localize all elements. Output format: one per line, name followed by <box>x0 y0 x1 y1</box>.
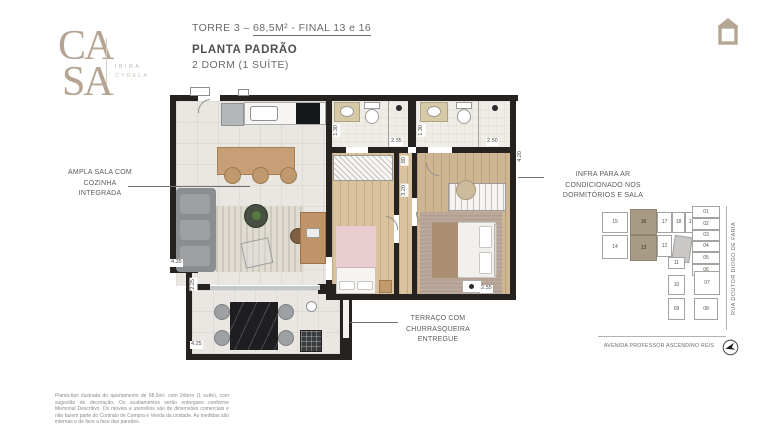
tower-spec-underlined: 68,5M² - FINAL 13 e 16 <box>253 22 371 36</box>
wall <box>394 243 399 296</box>
sofa-cushion <box>180 220 210 240</box>
bedroom2-pillow <box>339 281 355 290</box>
suite-ottoman <box>456 180 476 200</box>
plant <box>252 211 261 220</box>
building-icon <box>716 17 740 45</box>
wall <box>220 95 518 101</box>
keyplan-unit-05: 05 <box>692 252 720 264</box>
keyplan-unit-01: 01 <box>692 206 720 218</box>
suite-headboard <box>494 224 497 276</box>
street-name-right: RUA DOUTOR DIOGO DE FARIA <box>731 206 737 330</box>
keyplan-unit-14: 14 <box>602 235 628 259</box>
bedroom2-nightstand <box>379 280 392 293</box>
wall <box>326 95 332 257</box>
dim-living-width: 4.35 <box>170 259 183 267</box>
desk <box>300 212 326 264</box>
kitchen-sink <box>250 106 278 121</box>
wall <box>368 147 408 153</box>
keyplan-unit-13: 13 <box>630 235 657 261</box>
street-name-bottom: AVENIDA PROFESSOR ASCENDINO REIS <box>598 343 720 349</box>
suite-pillow <box>479 226 492 248</box>
callout-ac-infra: INFRA PARA AR CONDICIONADO NOS DORMITÓRI… <box>540 170 666 202</box>
street-line-right <box>726 206 727 330</box>
keyplan-unit-11: 11 <box>668 257 685 269</box>
keyplan-unit-10: 10 <box>668 275 685 295</box>
bath1-showerhead <box>396 105 402 111</box>
wall <box>510 95 516 300</box>
bath1-sink <box>340 106 354 117</box>
brand-tagline-2: CYRELA <box>115 73 149 79</box>
kitchen-cabinet <box>221 103 244 126</box>
cooktop <box>296 103 320 124</box>
sliding-glass-door <box>210 285 320 290</box>
bath1-toilet <box>365 109 379 124</box>
terrace-chair <box>214 330 230 346</box>
wall <box>326 294 516 300</box>
terrace-chair <box>278 304 294 320</box>
keyplan-unit-08: 08 <box>694 298 718 320</box>
dim-bath1-width: 2.35 <box>390 138 403 146</box>
dim-hall-width: .80 <box>401 156 409 166</box>
logo-divider <box>106 38 107 84</box>
terrace-sink <box>306 301 317 312</box>
plan-title: PLANTA PADRÃO <box>192 44 297 56</box>
wall <box>186 354 352 360</box>
bath2-showerhead <box>492 105 498 111</box>
sofa-cushion <box>180 246 210 266</box>
dim-suite-width: 2.55 <box>480 285 493 293</box>
bath2-shower-partition <box>478 101 479 147</box>
bedroom2-blanket <box>336 226 376 268</box>
wall <box>412 153 417 198</box>
leader-line-living <box>128 186 250 187</box>
dim-terrace-depth: 2.25 <box>190 278 198 291</box>
bath2-toilet <box>457 109 471 124</box>
street-line-bottom <box>598 336 726 337</box>
wall <box>412 226 417 296</box>
laptop <box>306 228 320 238</box>
sofa-cushion <box>180 194 210 214</box>
header-tower-line: TORRE 3 – 68,5M² - FINAL 13 e 16 <box>192 22 371 34</box>
brand-tagline-1: IBIRA <box>115 64 141 70</box>
island-stool <box>280 167 297 184</box>
keyplan-unit-15: 15 <box>602 212 628 233</box>
suite-pillow <box>479 252 492 274</box>
utility-box <box>238 89 249 96</box>
terrace-chair <box>214 304 230 320</box>
suite-blanket <box>432 222 458 278</box>
floor-plan-page: CA SA IBIRA CYRELA TORRE 3 – 68,5M² - FI… <box>0 0 764 432</box>
leader-line-terrace <box>350 322 398 323</box>
key-plan: 15 16 17 18 19 01 02 03 04 05 06 14 13 1… <box>598 203 726 325</box>
dim-bath2-depth: 1.30 <box>418 124 426 137</box>
wall <box>416 147 428 153</box>
island-stool <box>252 167 269 184</box>
utility-box <box>190 87 210 96</box>
dim-bath2-width: 2.50 <box>486 138 499 146</box>
dim-bath1-depth: 1.30 <box>333 124 341 137</box>
dim-hall-depth: 3.20 <box>401 184 409 197</box>
leader-line-ac <box>518 177 544 178</box>
terrace-chair <box>278 330 294 346</box>
barbecue-grill <box>300 330 322 352</box>
terrace-dining-table <box>230 302 278 350</box>
dim-terrace-width: 4.25 <box>190 341 203 349</box>
keyplan-unit-02: 02 <box>692 218 720 230</box>
churrasqueira-niche <box>343 300 349 338</box>
keyplan-unit-17: 17 <box>657 212 672 233</box>
bath1-shower-partition <box>388 101 389 147</box>
dim-suite-depth: 4.20 <box>517 150 525 163</box>
wall <box>452 147 516 153</box>
island-stool <box>224 167 241 184</box>
hall-floor <box>399 153 412 296</box>
suite-lamp <box>469 284 474 289</box>
compass-icon <box>722 339 739 356</box>
wall <box>332 147 346 153</box>
keyplan-unit-07: 07 <box>694 271 720 295</box>
keyplan-unit-18: 18 <box>672 212 685 233</box>
bath1-toilet-tank <box>364 102 380 109</box>
disclaimer-text: Planta-tipo ilustrada do apartamento de … <box>55 393 229 426</box>
keyplan-unit-04: 04 <box>692 241 720 252</box>
keyplan-unit-09: 09 <box>668 298 685 320</box>
keyplan-unit-12: 12 <box>657 235 672 257</box>
callout-living: AMPLA SALA COM COZINHA INTEGRADA <box>50 168 150 200</box>
plan-subtitle: 2 DORM (1 SUÍTE) <box>192 59 289 71</box>
bedroom2-wardrobe <box>333 155 393 181</box>
tower-prefix: TORRE 3 – <box>192 22 253 34</box>
callout-terrace: TERRAÇO COM CHURRASQUEIRA ENTREGUE <box>398 314 478 346</box>
keyplan-unit-16: 16 <box>630 209 657 235</box>
wall <box>408 95 416 147</box>
bedroom2-pillow <box>357 281 373 290</box>
logo-line-bottom: SA <box>62 64 112 100</box>
keyplan-unit-03: 03 <box>692 230 720 241</box>
bath2-toilet-tank <box>456 102 472 109</box>
bath2-sink <box>427 106 441 117</box>
wall <box>394 153 399 215</box>
